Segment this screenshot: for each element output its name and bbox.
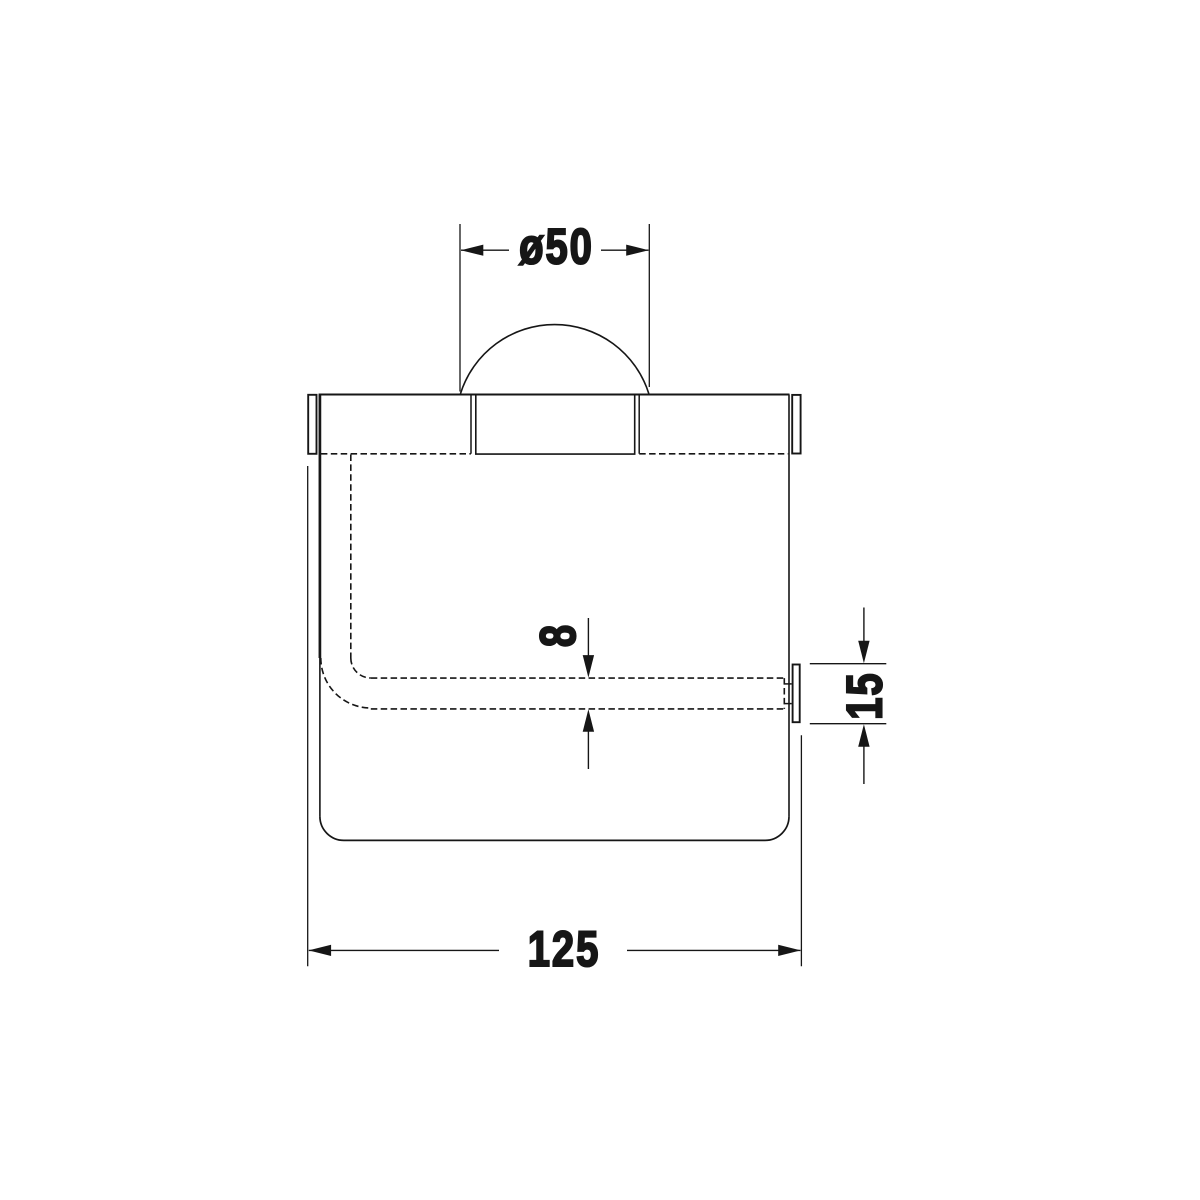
svg-text:15: 15 (836, 671, 892, 719)
svg-text:ø50: ø50 (519, 218, 594, 274)
svg-text:8: 8 (530, 623, 586, 647)
svg-text:125: 125 (528, 921, 600, 977)
